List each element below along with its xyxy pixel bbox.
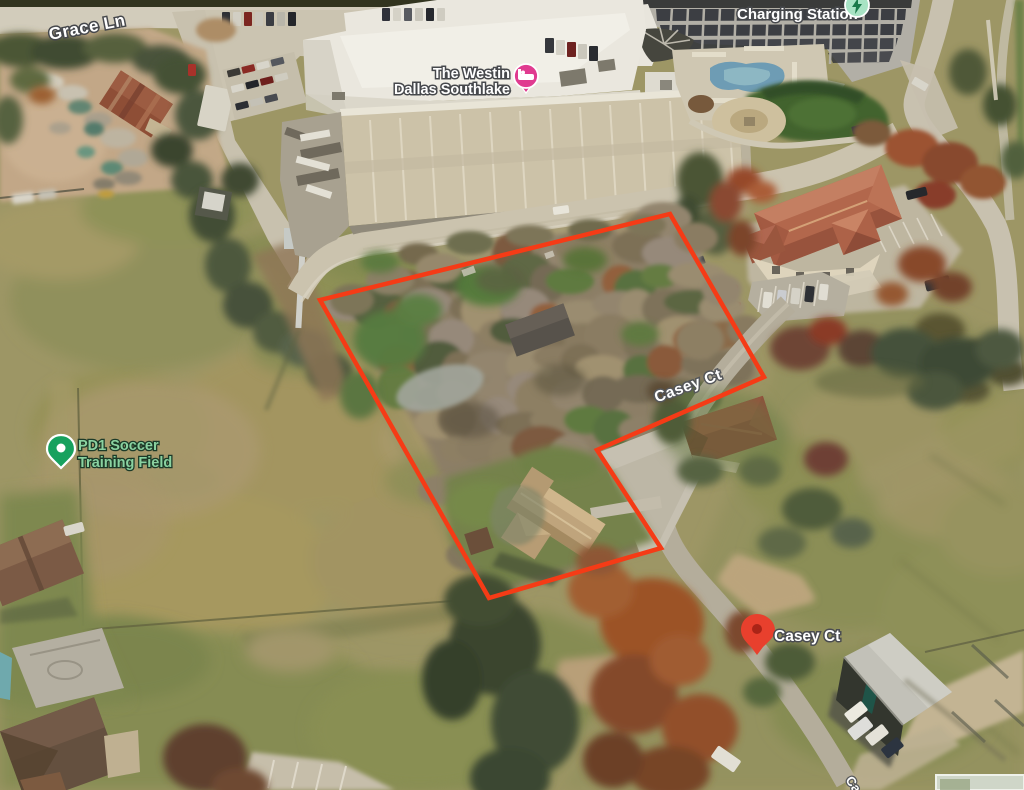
svg-text:PD1 Soccer: PD1 Soccer xyxy=(78,438,159,454)
svg-text:Training Field: Training Field xyxy=(78,455,172,471)
svg-text:The Westin: The Westin xyxy=(433,66,510,82)
svg-text:Casey Ct: Casey Ct xyxy=(774,628,840,645)
svg-text:Dallas Southlake: Dallas Southlake xyxy=(394,82,510,98)
svg-text:Charging Station: Charging Station xyxy=(737,6,858,23)
